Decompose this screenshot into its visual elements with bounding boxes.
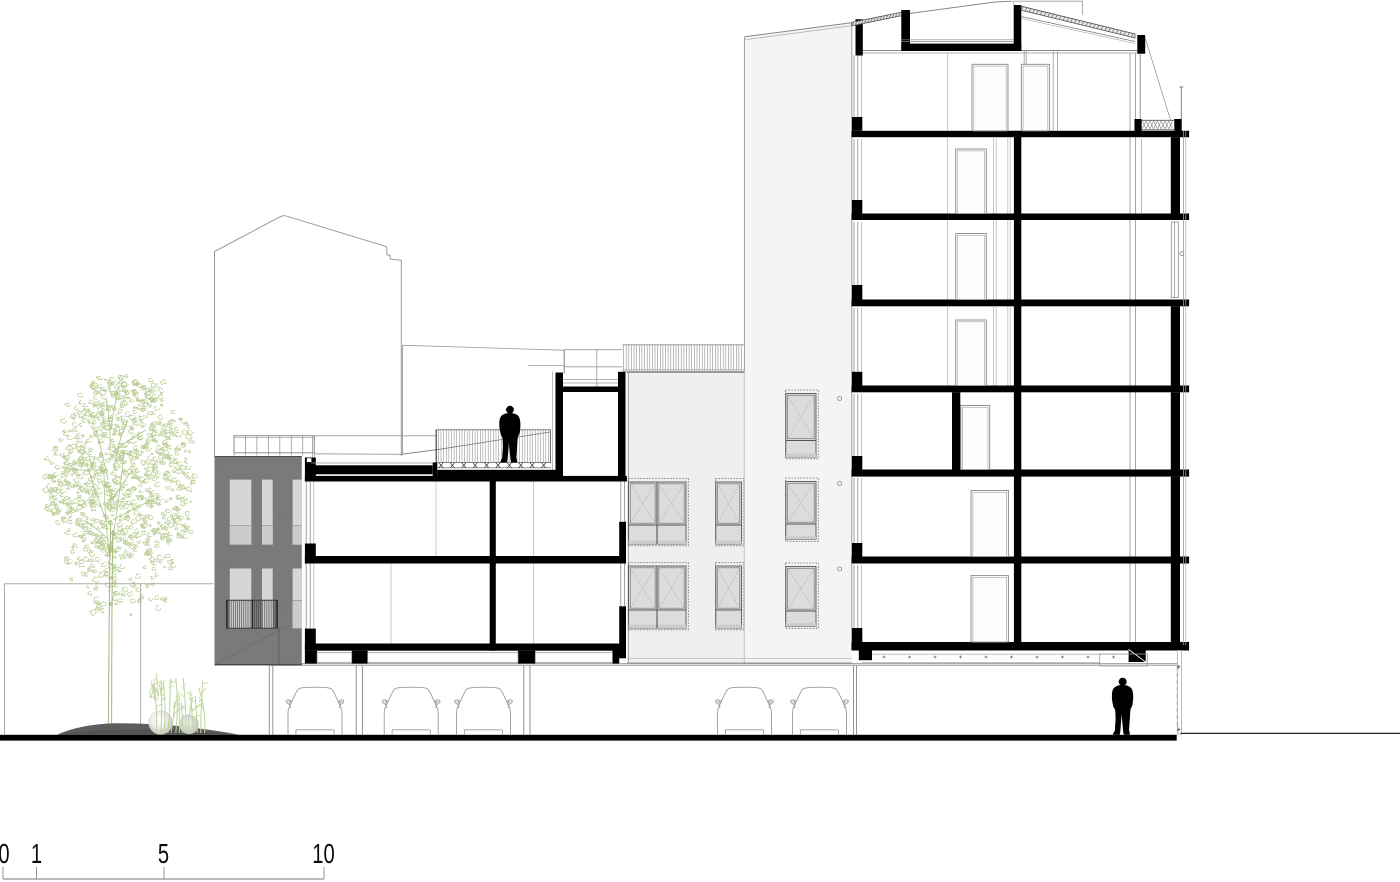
svg-text:1: 1 (31, 839, 42, 870)
svg-text:0: 0 (0, 839, 10, 870)
svg-text:10: 10 (312, 839, 334, 870)
svg-text:5: 5 (158, 839, 169, 870)
